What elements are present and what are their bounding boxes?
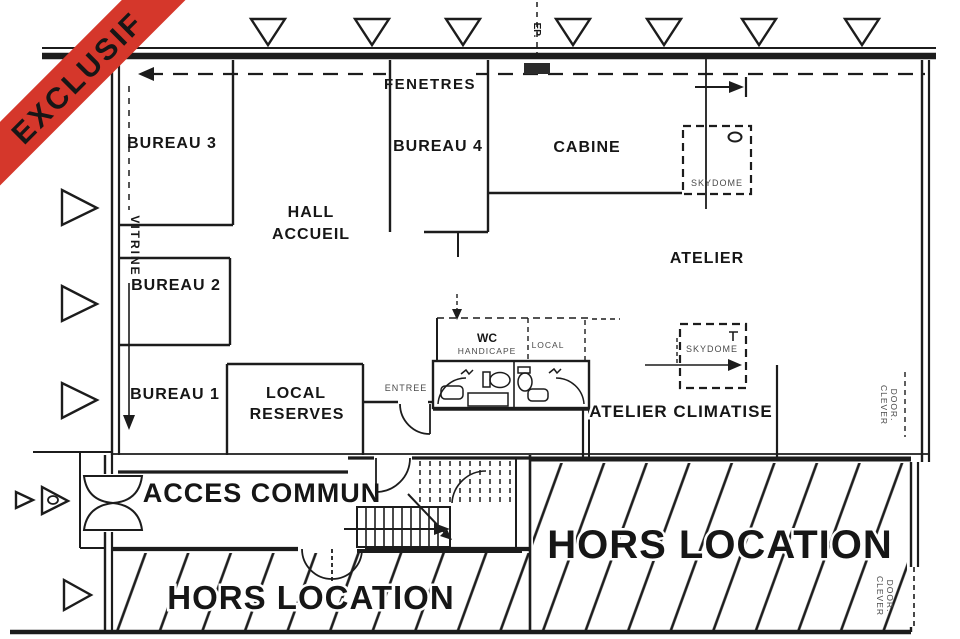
room-label-reserves-1: LOCAL <box>266 385 326 402</box>
room-label-acces-commun: ACCES COMMUN <box>143 478 382 508</box>
banner-label: EXCLUSIF <box>6 6 151 151</box>
fenetres-label: FENETRES <box>384 76 476 93</box>
label-handicape: HANDICAPE <box>458 346 517 356</box>
skydome-1-label: SKYDOME <box>691 178 743 188</box>
exclusif-banner: EXCLUSIF <box>0 0 213 213</box>
floor-plan: FENETRES EP. VITRINE <box>0 0 960 639</box>
room-label-bureau4: BUREAU 4 <box>393 138 483 155</box>
skydome-vent-icon <box>729 133 742 142</box>
clever-door-2: CLEVER DOOR. <box>875 576 895 616</box>
ep-wall-box <box>524 63 550 74</box>
room-label-atelier: ATELIER <box>670 250 744 267</box>
room-label-cabine: CABINE <box>553 139 620 156</box>
clever-door-1-text: CLEVER <box>879 385 889 425</box>
room-label-hall-2: ACCUEIL <box>272 226 350 243</box>
arrowhead-left-icon <box>138 67 154 81</box>
room-label-hors-location-right: HORS LOCATION <box>547 523 893 567</box>
arrowhead-down-icon <box>123 415 135 430</box>
skydome-2 <box>645 324 746 388</box>
clever-door-1: CLEVER DOOR. <box>879 372 905 437</box>
clever-door-2-text: CLEVER <box>875 576 885 616</box>
label-wc: WC <box>477 331 497 345</box>
room-label-reserves-2: RESERVES <box>250 406 345 423</box>
room-label-hall-1: HALL <box>288 204 335 221</box>
stair-treads-dashed <box>420 461 510 503</box>
skydome-2-label: SKYDOME <box>686 344 738 354</box>
arrowhead-right-icon <box>729 81 744 93</box>
label-local: LOCAL <box>532 340 565 350</box>
room-label-hors-location-left: HORS LOCATION <box>167 579 454 616</box>
clever-door-1-text2: DOOR. <box>889 389 899 422</box>
room-label-bureau2: BUREAU 2 <box>131 277 221 294</box>
floor-plan-page: FENETRES EP. VITRINE <box>0 0 960 639</box>
vent-mark-icon <box>729 332 738 341</box>
label-entree: ENTREE <box>385 383 428 393</box>
room-label-atelier-climatise: ATELIER CLIMATISE <box>589 402 773 421</box>
triangle-with-oval <box>42 487 68 514</box>
window-triangles-top <box>251 19 879 45</box>
ep-annotation <box>524 2 550 74</box>
ep-label: EP. <box>531 23 542 38</box>
small-arrow-mark <box>16 492 33 508</box>
arrowhead-right-icon <box>728 359 742 371</box>
clever-door-2-text2: DOOR. <box>885 580 895 613</box>
room-label-bureau1: BUREAU 1 <box>130 386 220 403</box>
room-label-bureau3: BUREAU 3 <box>127 135 217 152</box>
double-swing-door <box>84 474 142 532</box>
